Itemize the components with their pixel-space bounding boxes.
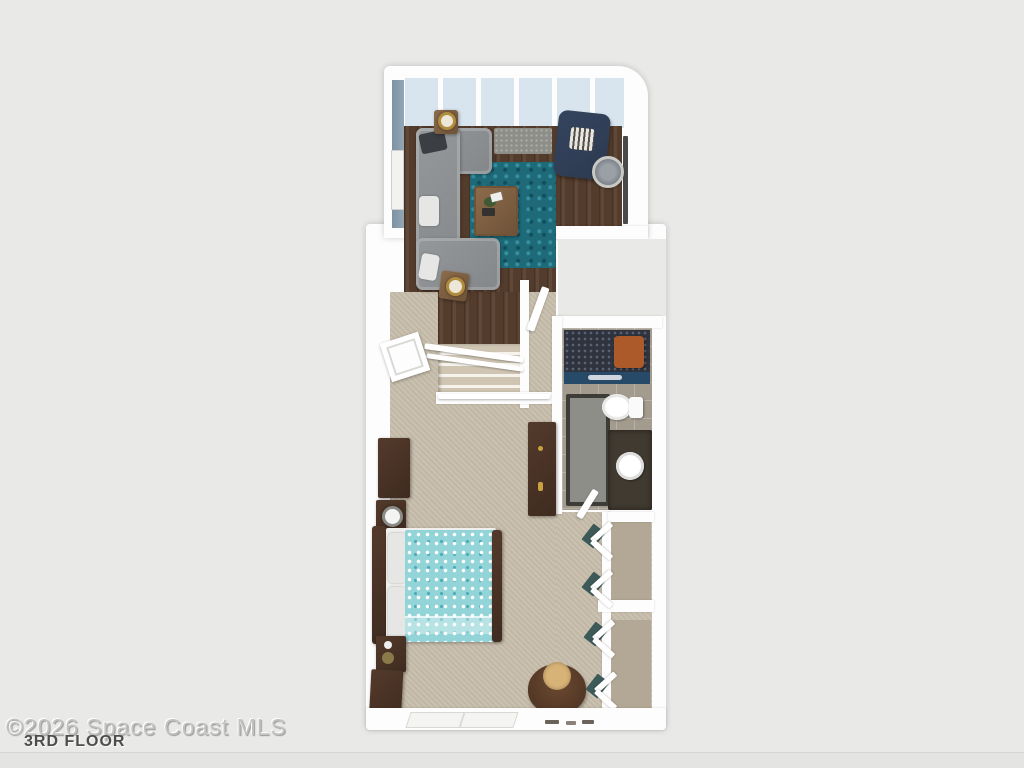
wardrobe-handle-1	[538, 446, 543, 451]
stair-side-wall	[520, 280, 529, 408]
nightstand-plant	[382, 652, 394, 664]
nightstand-lamp	[382, 506, 403, 527]
exterior-notch	[558, 239, 666, 316]
bed-pillow-2	[388, 587, 406, 638]
shower-bench	[614, 336, 644, 368]
wardrobe-handle-2	[538, 482, 543, 491]
closet-door-open-3	[594, 620, 628, 660]
floor-label: 3RD FLOOR	[24, 733, 125, 751]
wall-tv	[623, 136, 628, 224]
sill-decor-1	[545, 720, 559, 724]
closet-door-leaf	[590, 587, 613, 609]
vessel-sink	[616, 452, 644, 480]
papasan-cushion	[543, 662, 571, 690]
floor-plan-image: ©2026 Space Coast MLS 3RD FLOOR	[0, 0, 1024, 768]
wall-art	[391, 150, 404, 210]
toilet-tank	[629, 397, 643, 418]
coffee-table-tray	[482, 208, 495, 216]
threshold-panel-2	[459, 712, 518, 728]
tall-wardrobe	[528, 422, 556, 516]
bed-throw-fold	[405, 616, 496, 634]
living-room-south-wall	[552, 226, 648, 239]
bed-footboard	[492, 530, 502, 642]
round-side-table	[592, 156, 624, 188]
bottom-strip	[0, 752, 1024, 768]
sill-decor-2	[566, 721, 576, 725]
closet-door-open-4	[596, 672, 630, 712]
towel-bar	[588, 375, 622, 380]
closet-door-open-2	[592, 570, 626, 610]
bed-headboard	[372, 526, 386, 644]
nightstand-decor	[384, 641, 392, 649]
closet-divider-top	[608, 512, 654, 522]
bed-pillow-1	[388, 533, 406, 583]
closet-door-leaf	[592, 637, 615, 659]
doormat	[494, 128, 552, 154]
sofa-white-pillow	[419, 196, 439, 226]
table-lamp-bottom	[446, 277, 465, 296]
toilet-bowl	[602, 394, 632, 420]
closet-door-open-1	[592, 522, 626, 562]
bathroom-north-wall	[554, 316, 662, 328]
stair-railing-lower	[438, 394, 550, 399]
threshold-panel-1	[405, 712, 464, 728]
dresser	[378, 438, 410, 498]
closet-door-leaf	[590, 539, 613, 561]
armchair-pillow	[569, 127, 595, 151]
table-lamp-top	[438, 112, 456, 130]
sill-decor-3	[582, 720, 594, 724]
